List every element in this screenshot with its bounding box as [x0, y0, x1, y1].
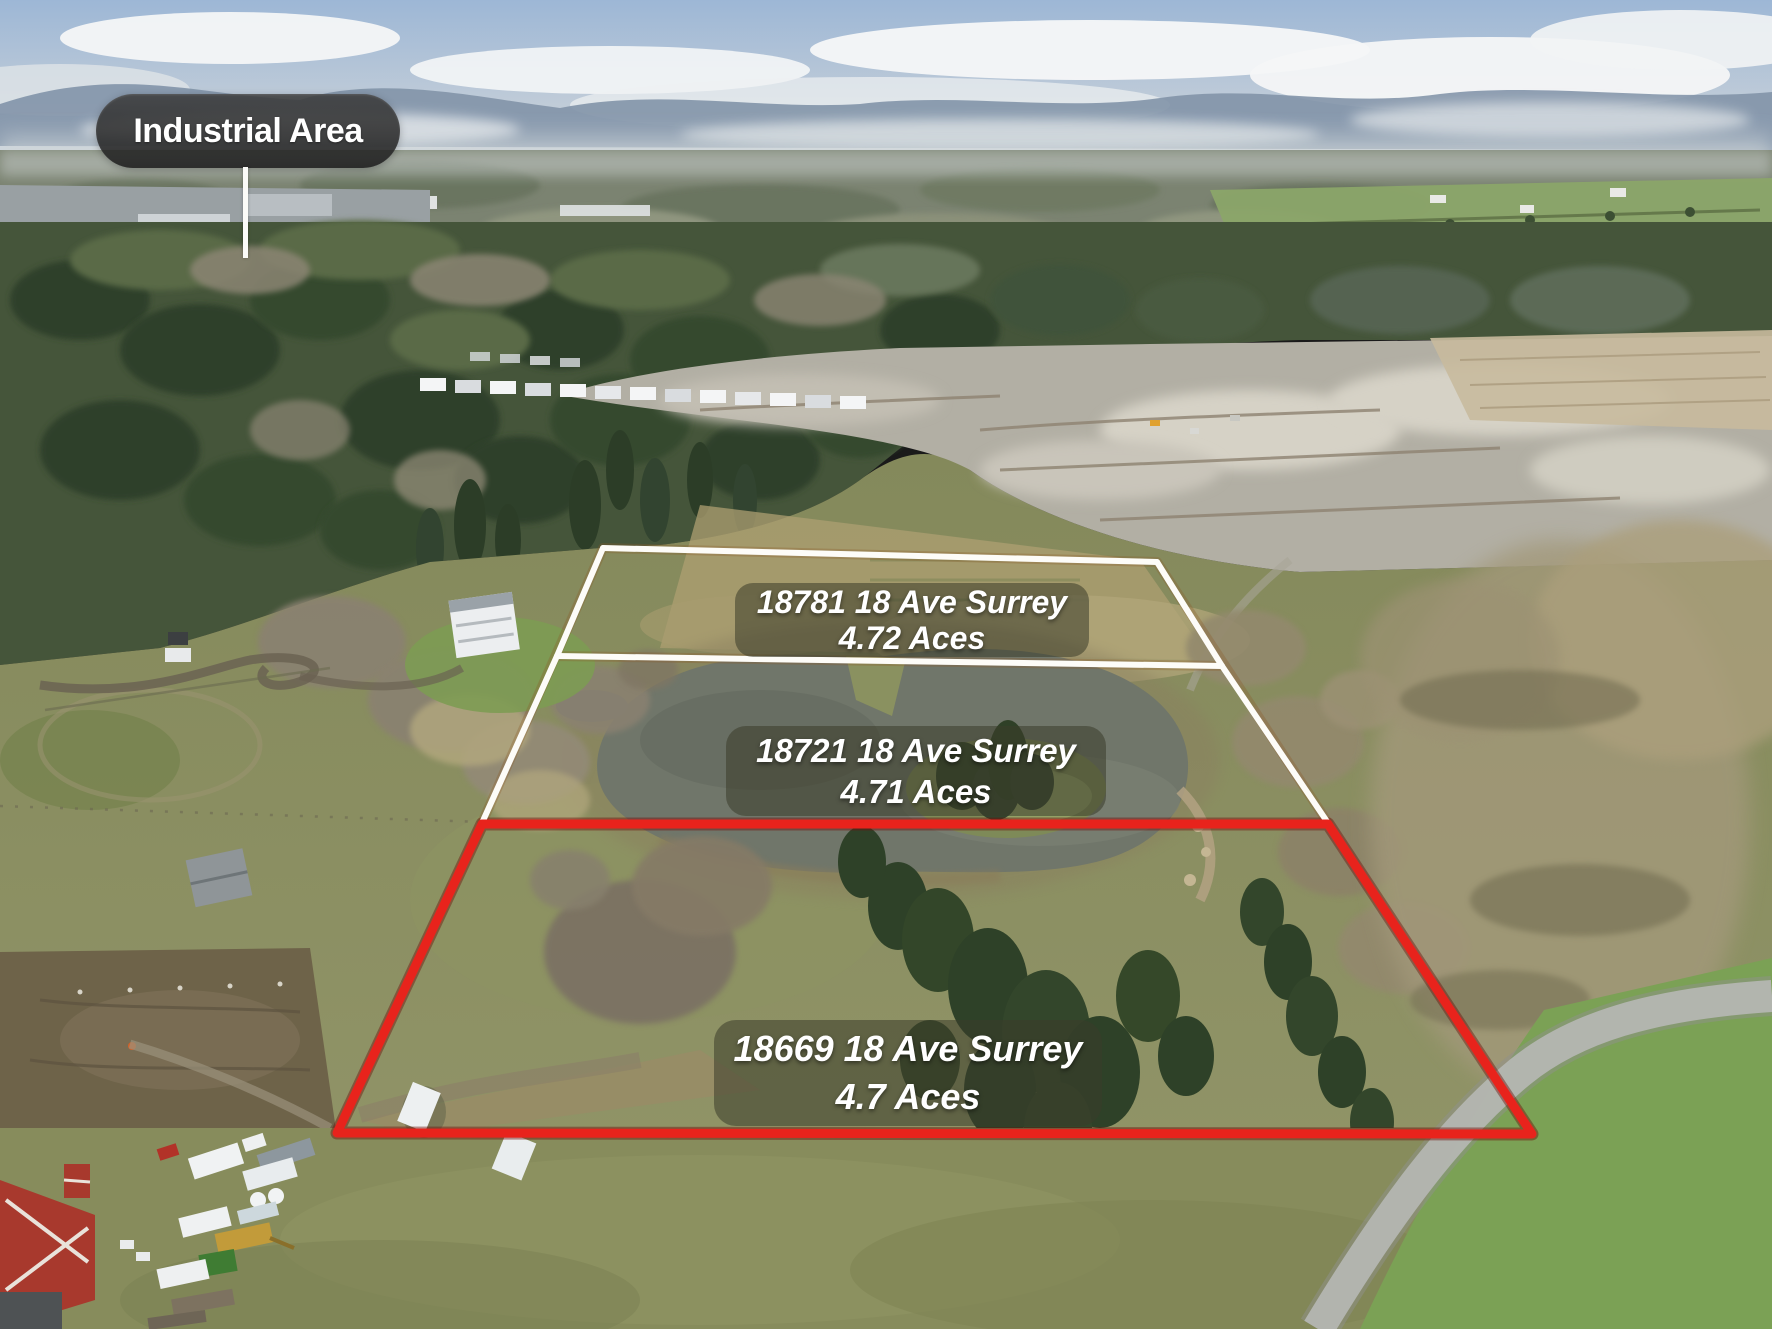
house: [448, 592, 519, 658]
industrial-area-label: Industrial Area: [133, 112, 362, 151]
lot-label-18721: 18721 18 Ave Surrey 4.71 Aces: [726, 726, 1106, 816]
industrial-area-pointer-line: [243, 167, 248, 258]
scene-svg: [0, 0, 1772, 1329]
lot-area: 4.7 Aces: [836, 1079, 981, 1115]
lot-area: 4.71 Aces: [840, 775, 991, 808]
small-shed: [168, 632, 188, 645]
parked-trailer: [165, 648, 191, 662]
lot-label-18781: 18781 18 Ave Surrey 4.72 Aces: [735, 583, 1089, 657]
lot-address: 18781 18 Ave Surrey: [757, 586, 1067, 618]
lot-address: 18721 18 Ave Surrey: [756, 734, 1076, 767]
lot-address: 18669 18 Ave Surrey: [734, 1031, 1083, 1067]
aerial-property-photo: Industrial Area 18781 18 Ave Surrey 4.72…: [0, 0, 1772, 1329]
lot-label-18669: 18669 18 Ave Surrey 4.7 Aces: [714, 1020, 1102, 1126]
lot-area: 4.72 Aces: [839, 622, 985, 654]
industrial-area-callout: Industrial Area: [96, 94, 400, 168]
mud-paddock: [0, 948, 336, 1130]
